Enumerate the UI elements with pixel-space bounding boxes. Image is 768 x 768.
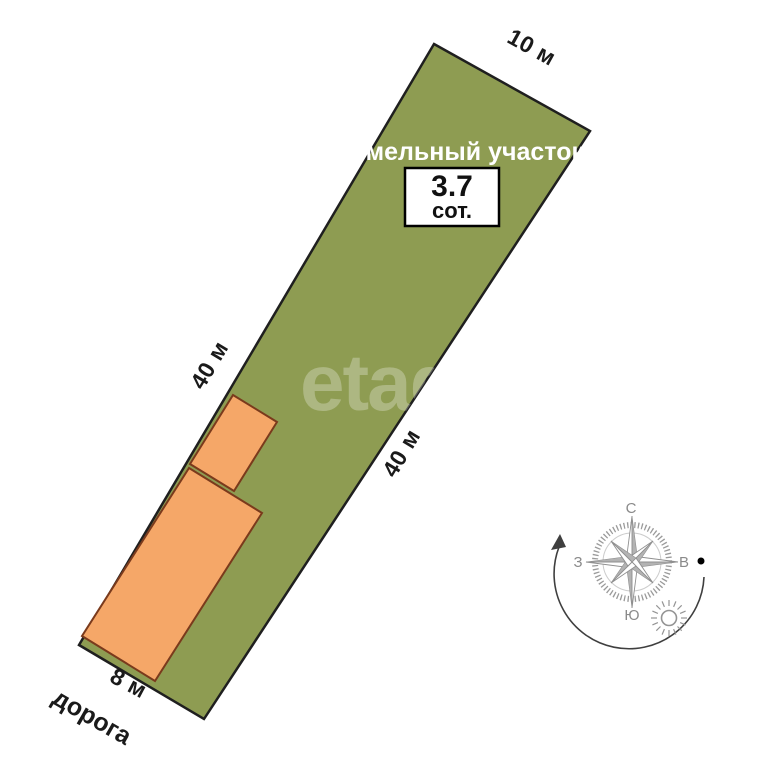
compass-label-north: С	[626, 500, 637, 517]
plot-title: земельный участок	[340, 138, 584, 166]
compass-label-west: З	[573, 554, 582, 571]
dimension-label-top: 10 м	[503, 23, 560, 70]
compass-label-east: В	[679, 554, 689, 571]
compass-star	[586, 516, 678, 608]
watermark-text: etagi	[300, 338, 477, 427]
compass-label-south: Ю	[624, 607, 639, 624]
sun-icon	[651, 600, 687, 636]
dimension-label-left: 40 м	[185, 336, 234, 393]
compass-rose: С Ю З В	[551, 500, 705, 649]
land-plot-plan: etagi земельный участок 3.7 сот. 10 м 40…	[0, 0, 768, 768]
area-unit: сот.	[432, 198, 472, 223]
sun-path-dot	[698, 558, 705, 565]
sun-path-arrowhead	[551, 534, 566, 550]
